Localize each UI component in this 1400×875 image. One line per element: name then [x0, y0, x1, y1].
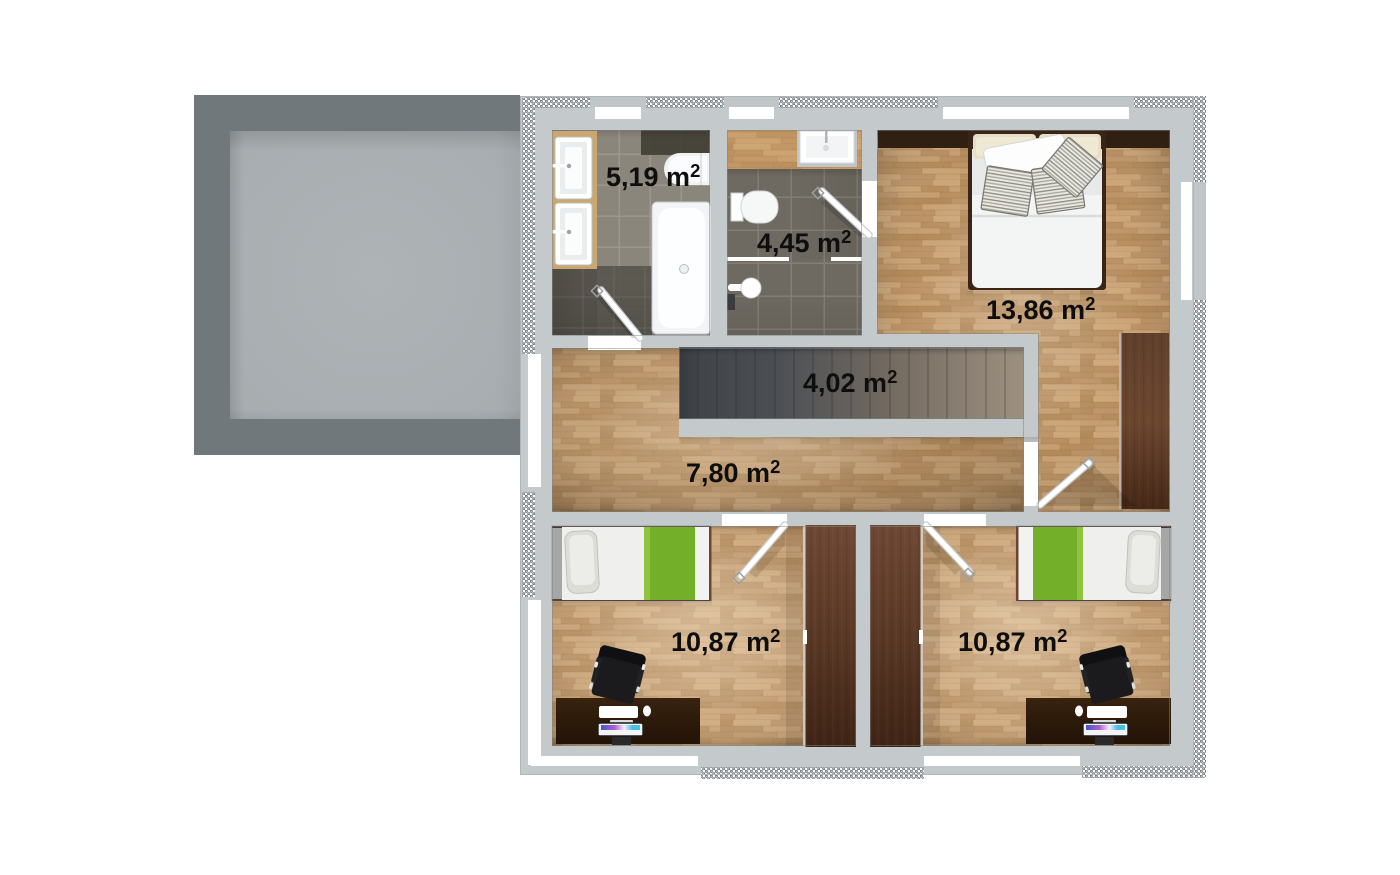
svg-text:7,80 m2: 7,80 m2: [686, 456, 780, 488]
svg-text:5,19 m2: 5,19 m2: [606, 160, 700, 192]
svg-text:13,86 m2: 13,86 m2: [986, 293, 1095, 325]
svg-text:4,45 m2: 4,45 m2: [757, 226, 851, 258]
svg-text:10,87 m2: 10,87 m2: [958, 625, 1067, 657]
svg-text:10,87 m2: 10,87 m2: [671, 625, 780, 657]
svg-text:4,02 m2: 4,02 m2: [803, 366, 897, 398]
